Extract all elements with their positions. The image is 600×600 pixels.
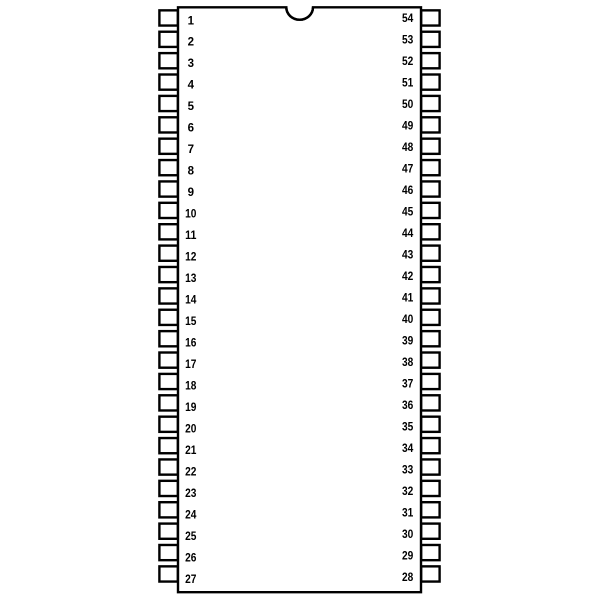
svg-text:26: 26 [185,552,196,564]
svg-text:9: 9 [188,187,194,199]
svg-text:6: 6 [188,123,194,135]
svg-text:31: 31 [402,507,414,519]
svg-text:46: 46 [402,185,413,197]
svg-text:29: 29 [402,550,413,562]
svg-text:16: 16 [185,338,196,350]
svg-text:43: 43 [402,249,413,261]
svg-text:45: 45 [402,206,414,218]
svg-text:13: 13 [185,273,196,285]
svg-text:3: 3 [188,58,194,70]
svg-text:27: 27 [185,574,196,586]
svg-text:36: 36 [402,400,413,412]
svg-text:21: 21 [185,445,197,457]
svg-text:24: 24 [185,509,197,521]
svg-text:10: 10 [185,209,196,221]
svg-text:42: 42 [402,271,413,283]
svg-text:48: 48 [402,142,414,154]
svg-text:4: 4 [188,80,195,92]
svg-text:18: 18 [185,381,197,393]
svg-text:22: 22 [185,466,196,478]
svg-text:51: 51 [402,77,414,89]
svg-text:40: 40 [402,314,413,326]
svg-text:52: 52 [402,56,413,68]
svg-text:47: 47 [402,163,413,175]
svg-text:38: 38 [402,357,414,369]
svg-text:41: 41 [402,292,414,304]
svg-text:14: 14 [185,295,197,307]
svg-text:50: 50 [402,99,413,111]
svg-text:19: 19 [185,402,196,414]
svg-text:17: 17 [185,359,196,371]
svg-text:30: 30 [402,529,413,541]
svg-text:15: 15 [185,316,197,328]
svg-text:33: 33 [402,464,413,476]
svg-text:12: 12 [185,252,196,264]
svg-text:5: 5 [188,101,195,113]
svg-text:49: 49 [402,120,413,132]
svg-text:44: 44 [402,228,414,240]
svg-text:20: 20 [185,423,196,435]
svg-text:35: 35 [402,421,414,433]
svg-text:28: 28 [402,572,414,584]
svg-text:1: 1 [188,15,195,27]
svg-text:8: 8 [188,166,195,178]
svg-text:2: 2 [188,37,194,49]
svg-text:34: 34 [402,443,414,455]
svg-text:11: 11 [185,230,197,242]
svg-text:54: 54 [402,13,414,25]
svg-text:37: 37 [402,378,413,390]
svg-text:53: 53 [402,34,413,46]
svg-text:32: 32 [402,486,413,498]
svg-text:7: 7 [188,144,194,156]
svg-text:25: 25 [185,531,197,543]
svg-text:23: 23 [185,488,196,500]
svg-text:39: 39 [402,335,413,347]
